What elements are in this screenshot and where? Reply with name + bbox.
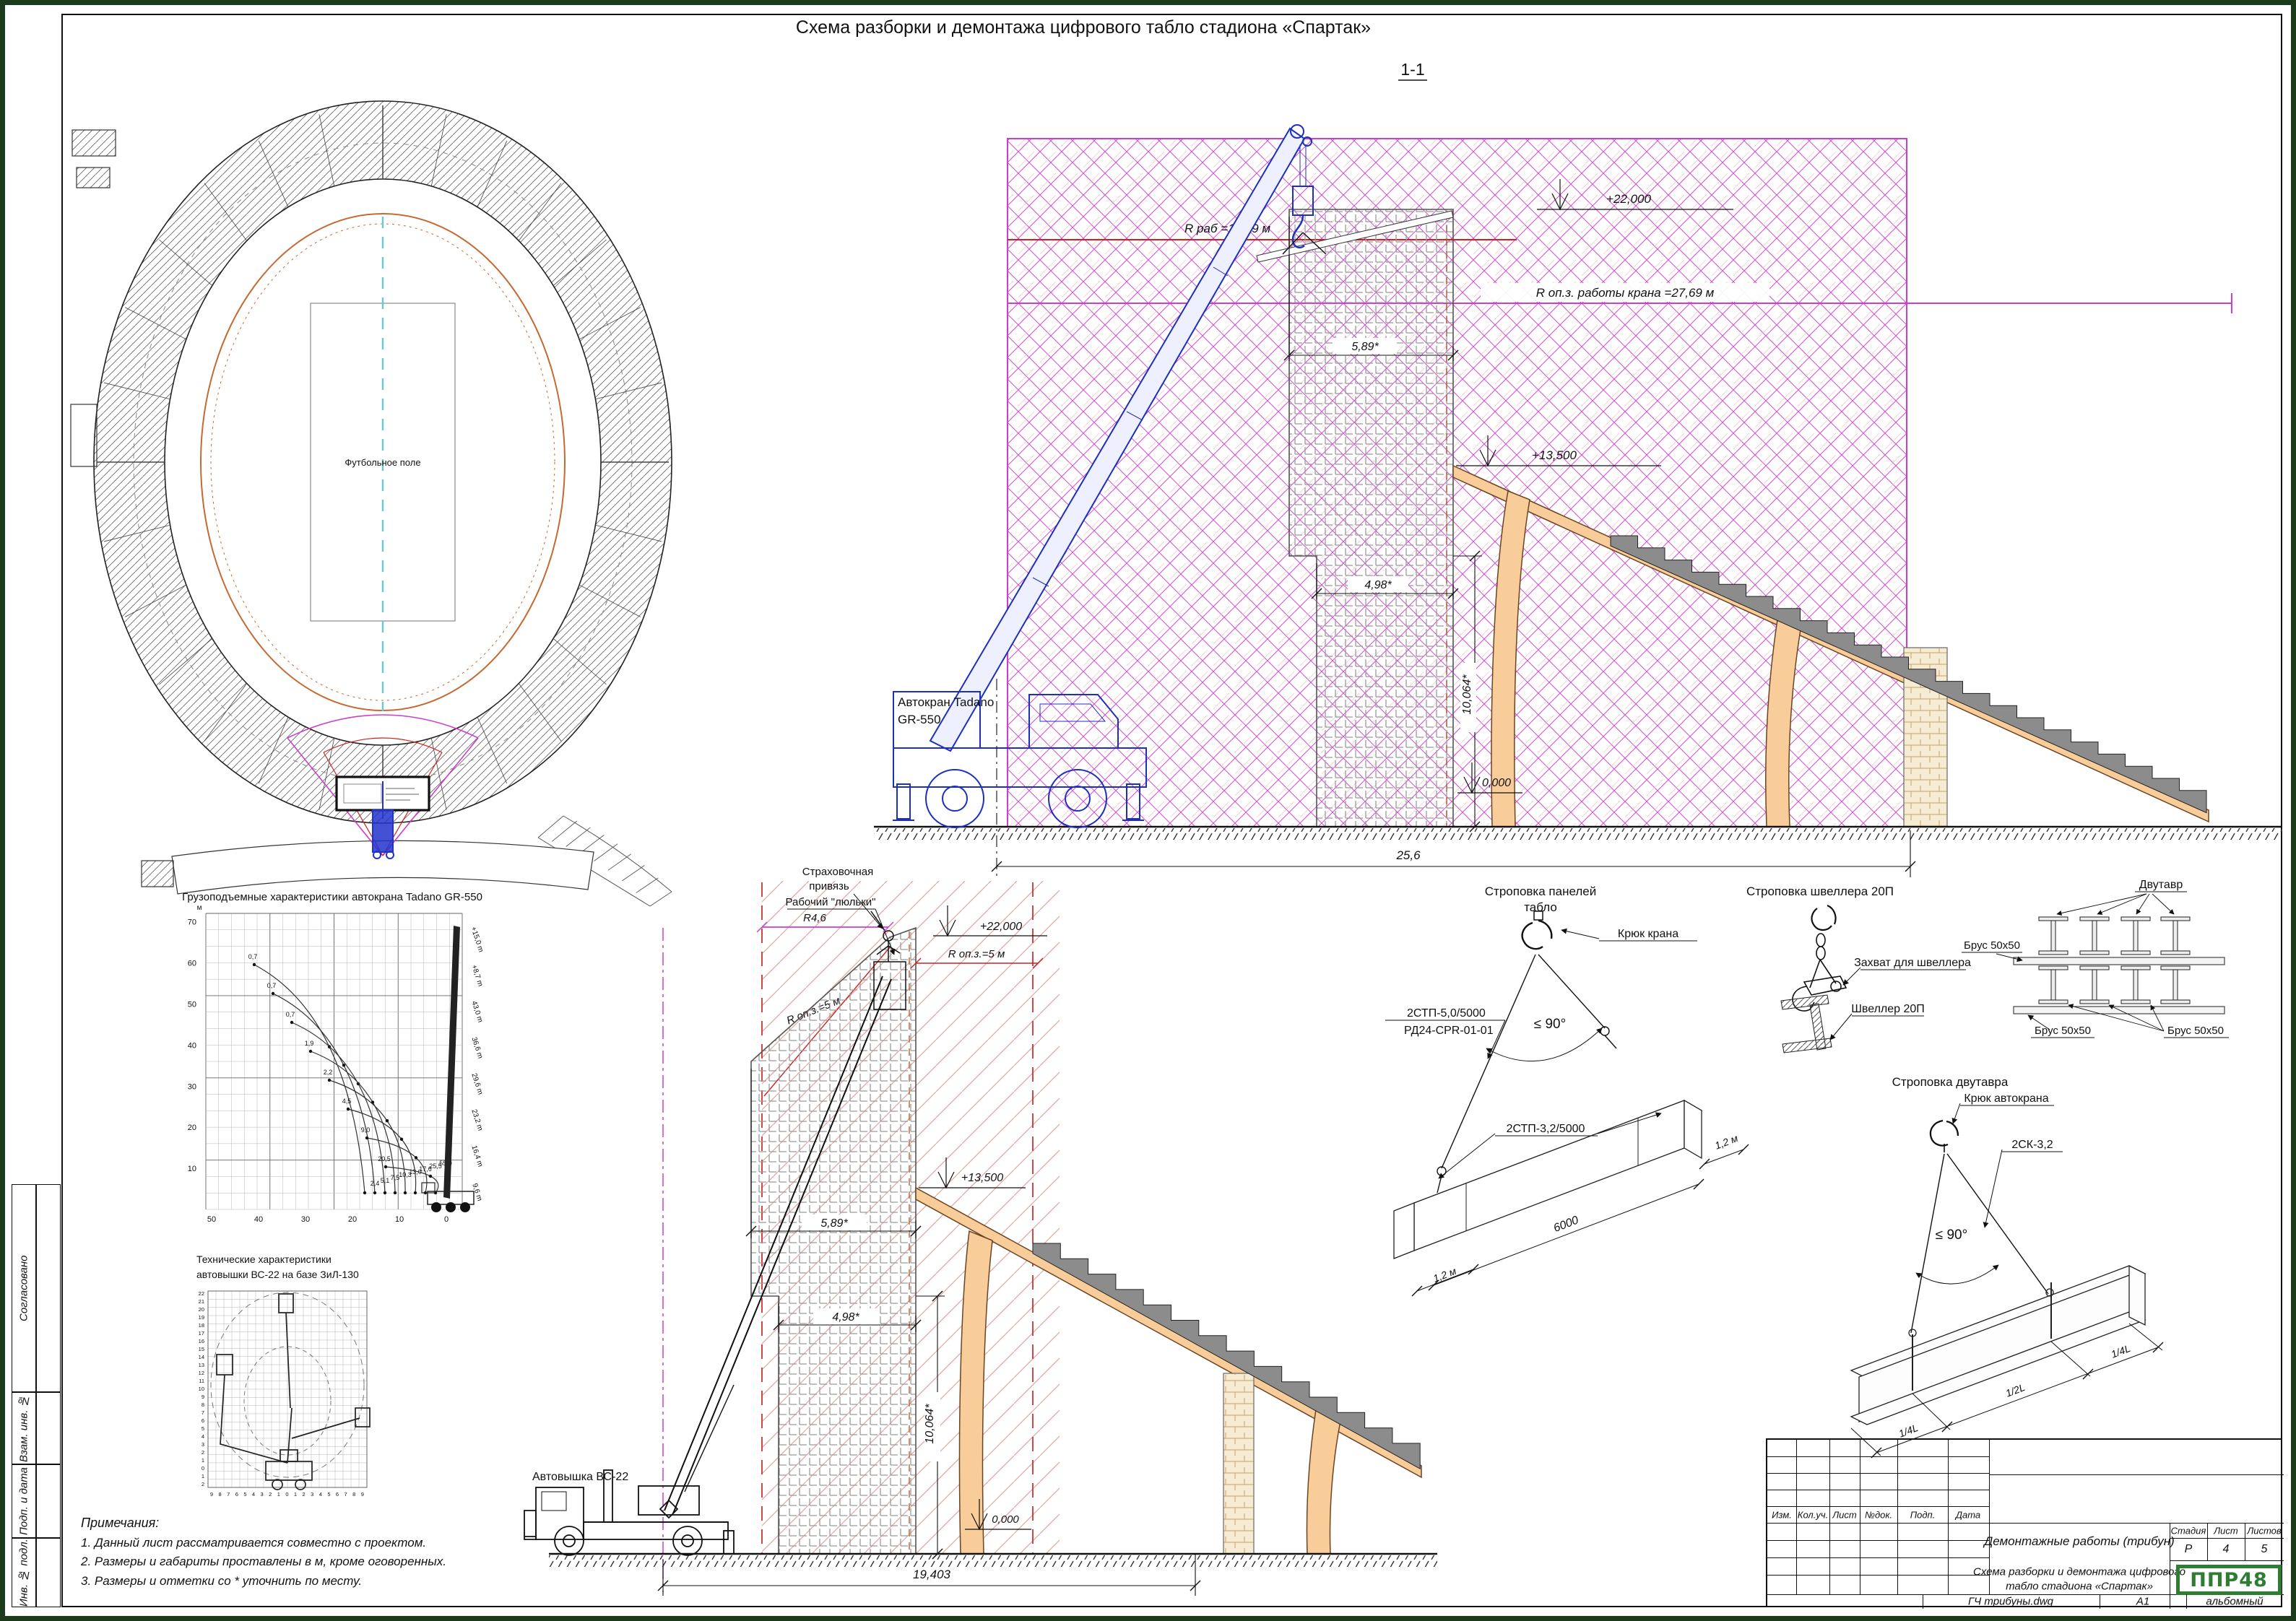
svg-text:5,1: 5,1 bbox=[381, 1177, 390, 1184]
beam-angle-label: ≤ 90° bbox=[1936, 1227, 1967, 1243]
svg-text:3: 3 bbox=[261, 1491, 264, 1498]
field-label: Футбольное поле bbox=[345, 457, 420, 468]
brus-label-2: Брус 50x50 bbox=[2035, 1025, 2091, 1037]
lift-chart-title2: автовышки ВС-22 на базе ЗиЛ-130 bbox=[196, 1269, 359, 1280]
svg-text:19: 19 bbox=[199, 1314, 204, 1321]
elev-13500: +13,500 bbox=[1532, 448, 1577, 462]
beam-hook-label: Крюк автокрана bbox=[1964, 1092, 2048, 1105]
beam-dim-quarter-left: 1/4L bbox=[1897, 1422, 1920, 1440]
svg-text:2: 2 bbox=[269, 1491, 272, 1498]
ppr48-logo: ППР48 bbox=[2176, 1565, 2282, 1595]
drawing-sheet: Сог­ласовано Взам. инв. № Подп. и дата И… bbox=[0, 0, 2296, 1621]
margin-box-approved: Сог­ласовано bbox=[12, 1184, 36, 1392]
tb-sheet-header: Лист bbox=[2214, 1526, 2237, 1537]
ibeam-iso bbox=[1851, 1266, 2145, 1425]
panel-rigging-title1: Строповка панелей bbox=[1485, 885, 1596, 898]
svg-text:9: 9 bbox=[202, 1394, 204, 1400]
ropz-right-label: R оп.з.=5 м bbox=[948, 948, 1005, 960]
lift-dim-span: 19,403 bbox=[913, 1568, 951, 1581]
svg-text:7: 7 bbox=[227, 1491, 230, 1498]
svg-text:0,7: 0,7 bbox=[248, 953, 258, 960]
svg-text:23,2 m: 23,2 m bbox=[469, 1108, 484, 1131]
lift-name: Автовышка ВС-22 bbox=[532, 1471, 628, 1483]
tb-stage-value: Р bbox=[2185, 1543, 2193, 1556]
svg-text:7: 7 bbox=[202, 1409, 204, 1416]
margin-label-approved: Сог­ласовано bbox=[12, 1185, 35, 1391]
dim-498: 4,98* bbox=[1364, 579, 1392, 591]
danger-zone-hatch bbox=[1008, 139, 2232, 827]
svg-text:16: 16 bbox=[199, 1338, 204, 1344]
beam-dim-half: 1/2L bbox=[2004, 1381, 2027, 1399]
panel-end-dim1: 1,2 м bbox=[1431, 1265, 1458, 1285]
svg-text:30: 30 bbox=[301, 1215, 310, 1224]
ground-line bbox=[874, 827, 2282, 840]
panel-sling1-label: 2СТП-5,0/5000 bbox=[1407, 1007, 1486, 1020]
tb-header-ndok: №док. bbox=[1865, 1510, 1892, 1521]
svg-text:8: 8 bbox=[352, 1491, 355, 1498]
panel-angle-label: ≤ 90° bbox=[1534, 1017, 1566, 1032]
note-item: 1. Данный лист рассматривается совместно… bbox=[81, 1534, 446, 1552]
svg-text:5: 5 bbox=[327, 1491, 330, 1498]
svg-text:10: 10 bbox=[395, 1215, 404, 1224]
load-chart: Грузоподъемные характеристики автокрана … bbox=[173, 885, 491, 1238]
tb-title-line1: Схема разборки и демонтажа цифрового bbox=[1973, 1566, 2185, 1578]
svg-text:3: 3 bbox=[311, 1491, 313, 1498]
tb-header-izm: Изм. bbox=[1772, 1510, 1792, 1521]
lift-elev-22000: +22,000 bbox=[980, 921, 1022, 933]
svg-text:16,4 m: 16,4 m bbox=[469, 1144, 484, 1168]
lift-chart: Технические характеристики автовышки ВС-… bbox=[173, 1246, 390, 1513]
lift-dim-10064: 10,064* bbox=[924, 1404, 936, 1444]
svg-text:9,6 m: 9,6 m bbox=[470, 1183, 483, 1202]
dim-10064: 10,064* bbox=[1461, 674, 1473, 715]
svg-text:1: 1 bbox=[294, 1491, 297, 1498]
svg-text:1,9: 1,9 bbox=[305, 1040, 314, 1047]
svg-text:1: 1 bbox=[202, 1457, 204, 1464]
svg-text:3: 3 bbox=[202, 1441, 204, 1448]
margin-box-vzam: Взам. инв. № bbox=[12, 1392, 36, 1464]
svg-text:9,0: 9,0 bbox=[361, 1126, 371, 1134]
lift-dim-589: 5,89* bbox=[820, 1217, 848, 1230]
svg-text:20: 20 bbox=[199, 1306, 204, 1313]
svg-text:0,7: 0,7 bbox=[286, 1011, 295, 1018]
load-chart-unit: м bbox=[197, 904, 202, 912]
svg-text:4: 4 bbox=[319, 1491, 322, 1498]
danger-radius-label: R оп.з. работы крана =27,69 м bbox=[1536, 286, 1715, 300]
svg-text:20,5: 20,5 bbox=[378, 1155, 391, 1162]
tb-sheet-value: 4 bbox=[2223, 1543, 2230, 1556]
svg-text:70: 70 bbox=[188, 918, 196, 927]
svg-text:1: 1 bbox=[277, 1491, 280, 1498]
svg-text:17: 17 bbox=[199, 1330, 204, 1337]
panel-rigging-title2: табло bbox=[1524, 900, 1557, 914]
svg-text:29,6 m: 29,6 m bbox=[469, 1072, 484, 1095]
crane-name-line1: Автокран Tadano bbox=[898, 695, 994, 709]
svg-text:+8,7 m: +8,7 m bbox=[469, 964, 484, 988]
harness-label-2: привязь bbox=[809, 880, 849, 892]
svg-text:6: 6 bbox=[235, 1491, 238, 1498]
svg-text:2: 2 bbox=[202, 1481, 204, 1487]
beam-dim-quarter-right: 1/4L bbox=[2110, 1342, 2132, 1360]
section-mark: 1-1 bbox=[1400, 60, 1424, 79]
tb-header-data: Дата bbox=[1956, 1510, 1980, 1521]
beam-rigging-title: Строповка двутавра bbox=[1892, 1075, 2009, 1089]
svg-text:5: 5 bbox=[243, 1491, 246, 1498]
svg-text:4,5: 4,5 bbox=[342, 1098, 352, 1105]
margin-label-inv: Инв. № подл. bbox=[12, 1539, 35, 1607]
lift-elev-0000: 0,000 bbox=[992, 1513, 1019, 1526]
panel-sling1b-label: РД24-СРR-01-01 bbox=[1404, 1025, 1494, 1037]
beam-rigging: Строповка двутавра Крюк автокрана ≤ 90° … bbox=[1851, 1075, 2162, 1456]
load-chart-curves: 0,72,40,75,10,77,51,910,32,213,04,517,69… bbox=[248, 953, 452, 1194]
note-item: 3. Размеры и отметки со * уточнить по ме… bbox=[81, 1572, 446, 1591]
brus-label-1: Брус 50x50 bbox=[1964, 939, 2020, 952]
load-chart-title: Грузоподъемные характеристики автокрана … bbox=[182, 891, 482, 903]
svg-text:4: 4 bbox=[252, 1491, 255, 1498]
panel-sling2-label: 2СТП-3,2/5000 bbox=[1507, 1123, 1585, 1135]
margin-box-vzam-blank bbox=[36, 1392, 61, 1464]
svg-text:11: 11 bbox=[199, 1378, 204, 1384]
lift-elev-13500: +13,500 bbox=[961, 1172, 1003, 1184]
margin-box-signdate: Подп. и дата bbox=[12, 1464, 36, 1538]
worker-label: Рабочий "люльки" bbox=[785, 896, 875, 908]
svg-text:0: 0 bbox=[444, 1215, 449, 1224]
svg-text:15: 15 bbox=[199, 1346, 204, 1352]
note-item: 2. Размеры и габариты проставлены в м, к… bbox=[81, 1552, 446, 1571]
dim-589: 5,89* bbox=[1351, 341, 1379, 353]
tb-sheets-header: Листов bbox=[2247, 1526, 2281, 1537]
football-field: Футбольное поле bbox=[311, 217, 455, 711]
svg-text:0,7: 0,7 bbox=[267, 982, 277, 989]
svg-text:2,2: 2,2 bbox=[324, 1069, 333, 1076]
svg-text:21: 21 bbox=[199, 1298, 204, 1305]
svg-text:9: 9 bbox=[210, 1491, 213, 1498]
tb-doc-type: Демонтажные работы (трибун) bbox=[1984, 1534, 2174, 1549]
svg-text:20: 20 bbox=[188, 1124, 196, 1132]
svg-text:36,6 m: 36,6 m bbox=[469, 1036, 484, 1059]
svg-text:2,4: 2,4 bbox=[371, 1180, 380, 1187]
svg-text:12: 12 bbox=[199, 1370, 204, 1376]
tb-format: А1 bbox=[2136, 1596, 2149, 1608]
channel-label: Швеллер 20П bbox=[1851, 1003, 1925, 1015]
crane-elevation: 1-1 R раб =12,69 м R оп.з. работы крана … bbox=[859, 58, 2289, 895]
svg-text:60: 60 bbox=[188, 960, 196, 968]
margin-box-inv-blank bbox=[36, 1538, 61, 1607]
brus-label-3: Брус 50x50 bbox=[2167, 1025, 2224, 1037]
harness-label-1: Страховочная bbox=[802, 866, 873, 878]
elev-0000: 0,000 bbox=[1482, 777, 1511, 789]
lift-elevation: R4,6 R оп.з.=5 м R оп.з.=5 м bbox=[506, 863, 1459, 1621]
svg-text:1: 1 bbox=[202, 1473, 204, 1479]
svg-text:10: 10 bbox=[188, 1165, 196, 1173]
lift-ground bbox=[549, 1554, 1437, 1567]
channel-section-icon bbox=[1781, 995, 1832, 1053]
svg-text:30: 30 bbox=[188, 1082, 196, 1091]
svg-text:6: 6 bbox=[336, 1491, 339, 1498]
panel-rigging: Строповка панелей табло Крюк крана ≤ 90°… bbox=[1385, 885, 1743, 1291]
panel-end-dim2: 1,2 м bbox=[1713, 1132, 1740, 1152]
svg-text:14: 14 bbox=[199, 1354, 204, 1360]
channel-rigging: Строповка швеллера 20П Захват для швелле… bbox=[1746, 885, 1971, 1053]
svg-text:20: 20 bbox=[348, 1215, 357, 1224]
tb-header-koluch: Кол.уч. bbox=[1798, 1510, 1828, 1521]
beam-stack: Двутавр Брус 50x50 Брус 50x50 Брус 50x50 bbox=[1962, 879, 2229, 1038]
svg-text:6: 6 bbox=[202, 1417, 204, 1424]
margin-label-vzam: Взам. инв. № bbox=[12, 1393, 35, 1464]
tb-header-list: Лист bbox=[1832, 1510, 1856, 1521]
dim-256: 25,6 bbox=[1395, 848, 1421, 862]
sheet-title: Схема разборки и демонтажа цифрового таб… bbox=[758, 17, 1408, 38]
tb-filename: ГЧ трибуны.dwg bbox=[1968, 1596, 2053, 1608]
autocrane-hook-icon bbox=[1931, 1121, 1958, 1152]
channel-rigging-title: Строповка швеллера 20П bbox=[1746, 885, 1894, 898]
elev-22000: +22,000 bbox=[1606, 192, 1651, 206]
notes-block: Примечания: 1. Данный лист рассматривает… bbox=[81, 1513, 446, 1591]
title-block: Изм. Кол.уч. Лист №док. Подп. Дата Демон… bbox=[1766, 1438, 2282, 1607]
lift-chart-title1: Технические характеристики bbox=[196, 1253, 332, 1265]
margin-box-approved-blank bbox=[36, 1184, 61, 1392]
panel-length-dim: 6000 bbox=[1552, 1214, 1580, 1235]
rigging-details: Строповка панелей табло Крюк крана ≤ 90°… bbox=[1372, 863, 2289, 1448]
svg-text:9: 9 bbox=[361, 1491, 364, 1498]
svg-text:8: 8 bbox=[202, 1401, 204, 1408]
svg-text:50: 50 bbox=[207, 1215, 216, 1224]
svg-text:40: 40 bbox=[254, 1215, 263, 1224]
tb-orientation: альбомный bbox=[2206, 1596, 2263, 1608]
tb-header-podp: Подп. bbox=[1910, 1510, 1936, 1521]
svg-text:+15,0 m: +15,0 m bbox=[469, 926, 485, 953]
tb-stage-header: Стадия bbox=[2171, 1526, 2206, 1537]
crane-name-line2: GR-550 bbox=[898, 713, 941, 726]
svg-text:0: 0 bbox=[202, 1465, 204, 1472]
margin-box-inv: Инв. № подл. bbox=[12, 1538, 36, 1607]
svg-text:43,0 m: 43,0 m bbox=[469, 1000, 484, 1023]
svg-text:13: 13 bbox=[199, 1362, 204, 1368]
svg-text:0: 0 bbox=[285, 1491, 288, 1498]
svg-text:2: 2 bbox=[202, 1449, 204, 1456]
tb-sheets-value: 5 bbox=[2261, 1543, 2268, 1556]
r46-label: R4,6 bbox=[803, 912, 826, 924]
channel-hook-icon bbox=[1812, 905, 1836, 960]
svg-text:22: 22 bbox=[199, 1290, 204, 1297]
svg-text:10: 10 bbox=[199, 1386, 204, 1392]
svg-text:40: 40 bbox=[188, 1041, 196, 1050]
svg-text:2: 2 bbox=[303, 1491, 306, 1498]
notes-title: Примечания: bbox=[81, 1513, 446, 1534]
margin-box-signdate-blank bbox=[36, 1464, 61, 1538]
margin-label-signdate: Подп. и дата bbox=[12, 1465, 35, 1537]
svg-text:18: 18 bbox=[199, 1322, 204, 1329]
crane-hook-icon bbox=[1522, 911, 1552, 949]
beam-stack-label: Двутавр bbox=[2139, 879, 2183, 891]
stadium-plan: Футбольное поле bbox=[58, 79, 708, 903]
svg-text:50: 50 bbox=[188, 1001, 196, 1009]
grab-label: Захват для швеллера bbox=[1854, 957, 1971, 969]
load-chart-ticks: 7060504030201050403020100+15,0 m+8,7 m43… bbox=[188, 918, 485, 1224]
svg-text:5: 5 bbox=[202, 1425, 204, 1432]
svg-text:4: 4 bbox=[202, 1433, 204, 1440]
hook-label: Крюк крана bbox=[1618, 928, 1678, 940]
svg-text:7: 7 bbox=[345, 1491, 347, 1498]
beam-sling-label: 2СК-3,2 bbox=[2011, 1139, 2053, 1151]
svg-text:8: 8 bbox=[219, 1491, 222, 1498]
lift-dim-498: 4,98* bbox=[832, 1311, 859, 1324]
tb-title-line2: табло стадиона «Спартак» bbox=[2006, 1581, 2153, 1593]
